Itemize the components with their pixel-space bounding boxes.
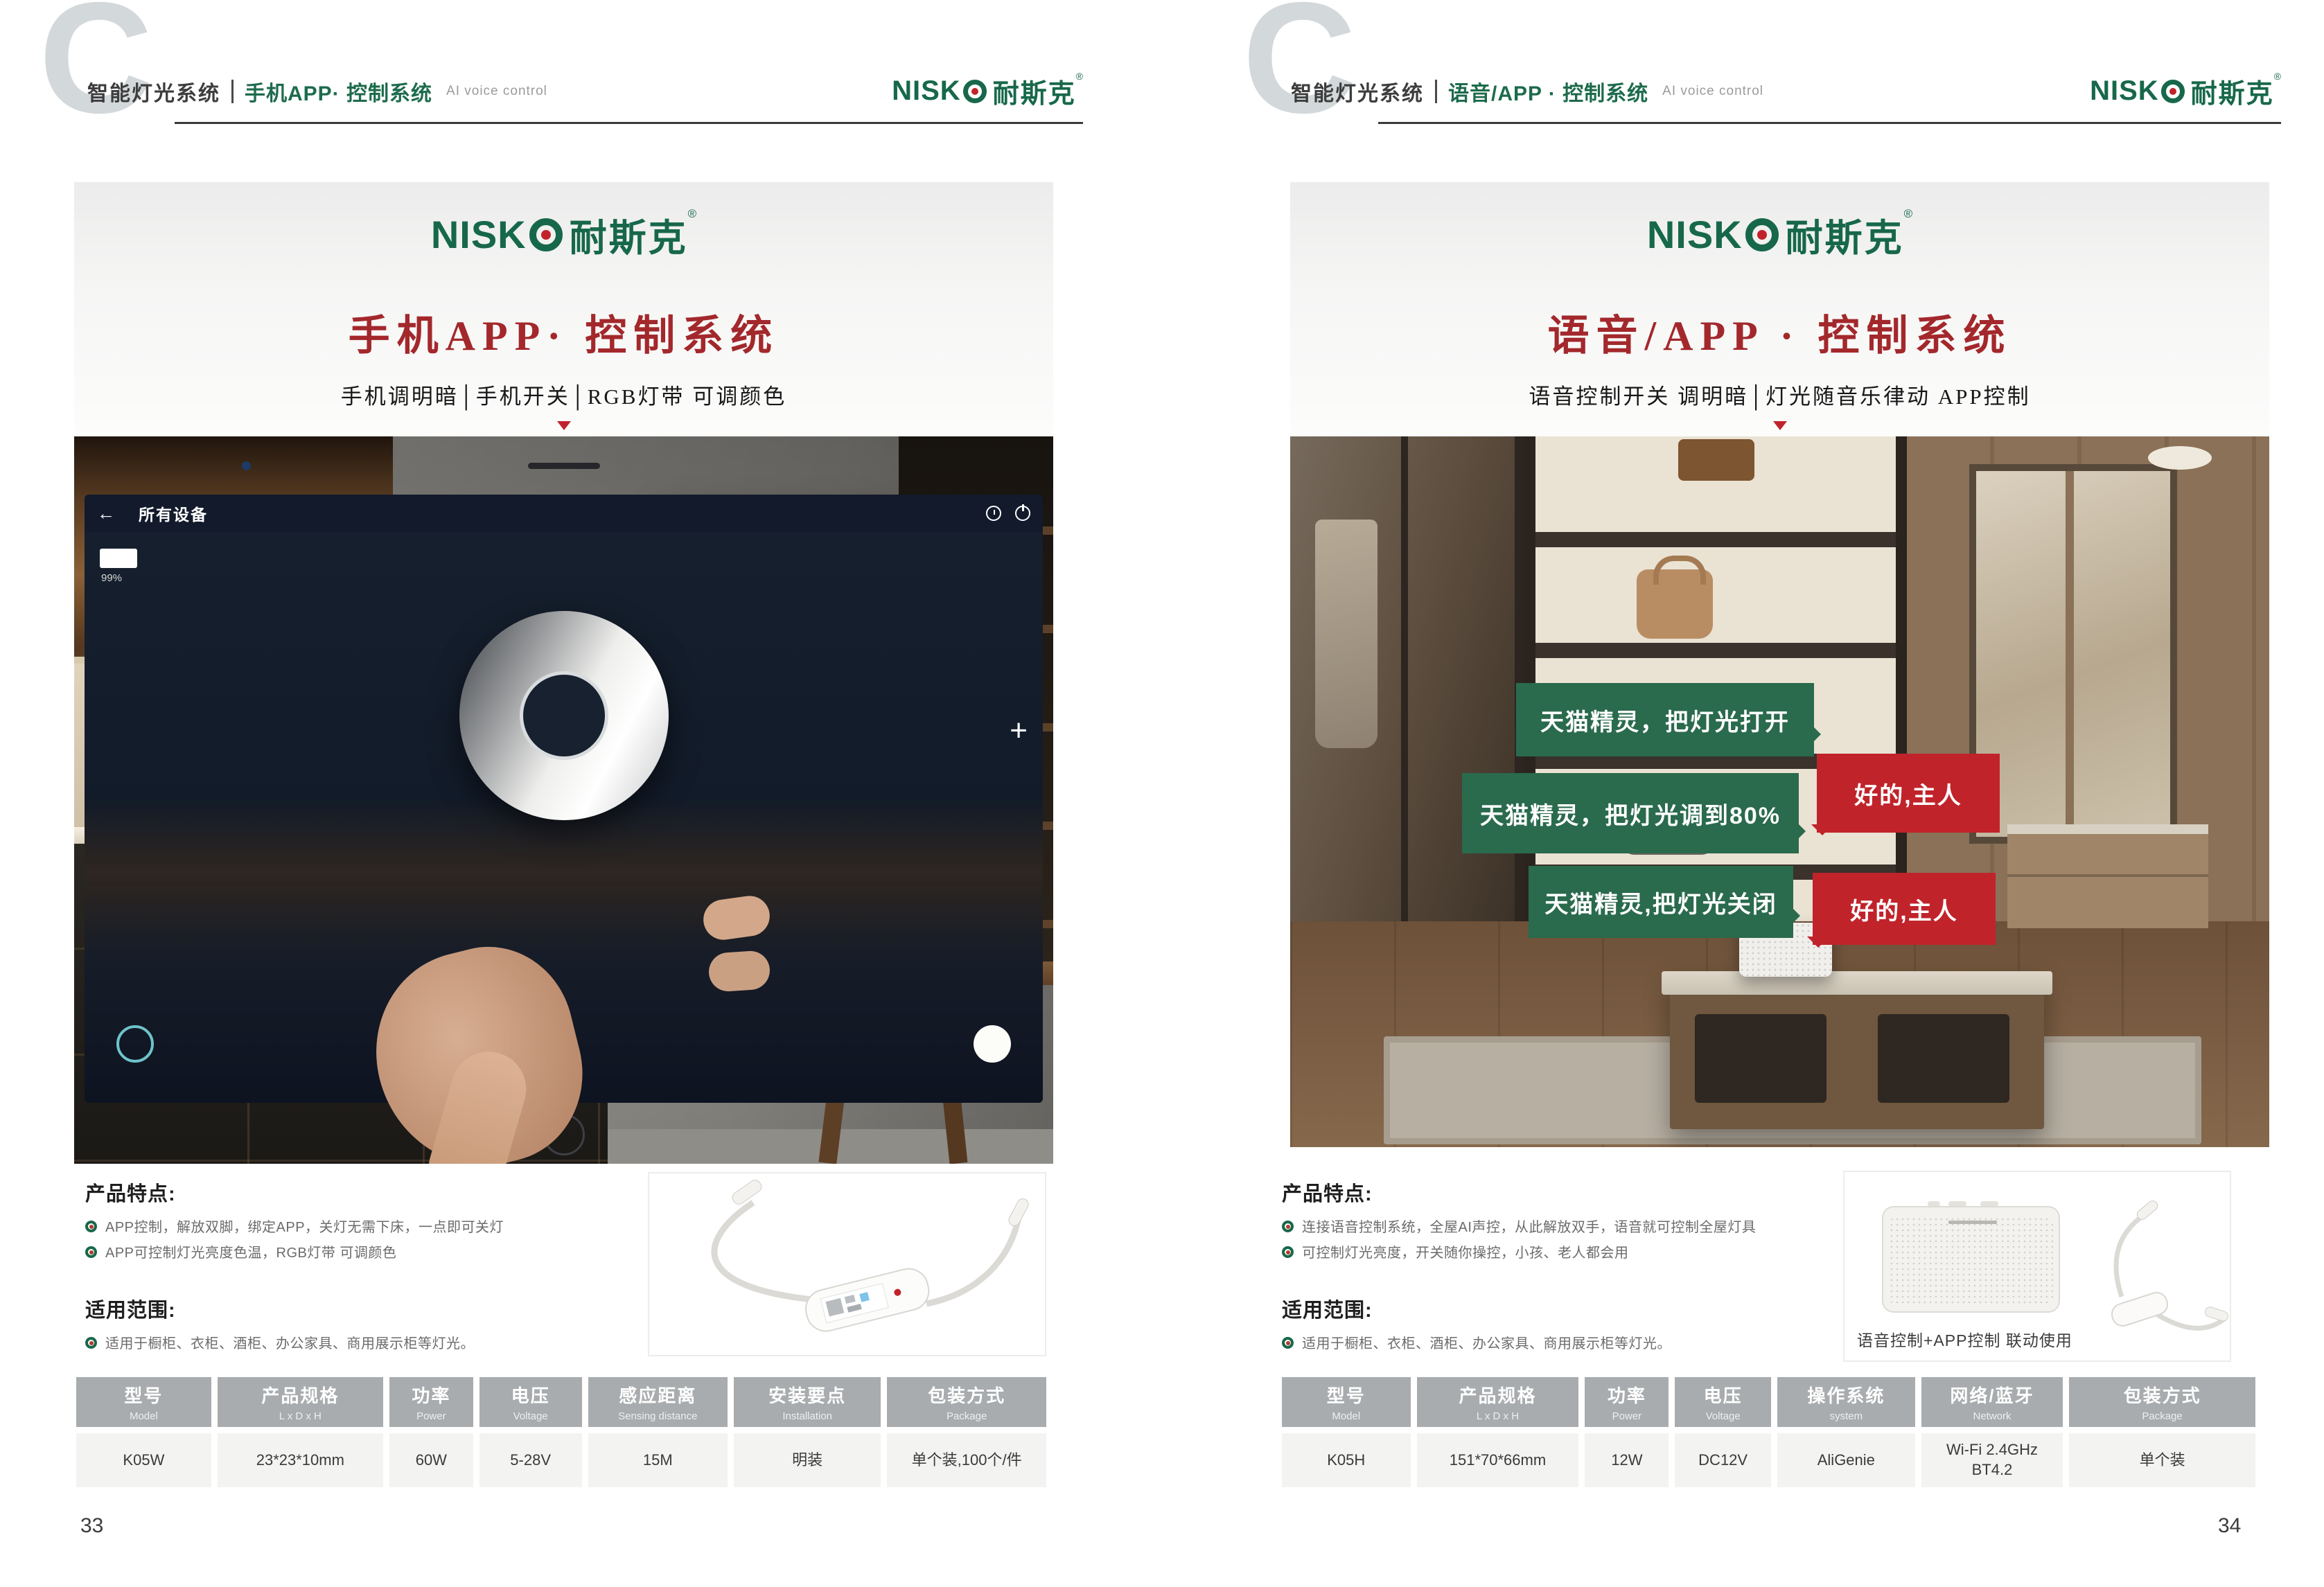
registered-mark: ® <box>1904 207 1913 221</box>
page-number: 33 <box>80 1514 103 1538</box>
voice-reply-bubble: 好的,主人 <box>1813 873 1996 945</box>
scope-title: 适用范围: <box>1282 1294 1836 1323</box>
voice-command-bubble: 天猫精灵,把灯光关闭 <box>1529 866 1793 938</box>
smartphone: ← 所有设备 99% + <box>74 436 320 897</box>
app-top-icons <box>986 506 1030 521</box>
table-cubby <box>1695 1014 1826 1103</box>
down-triangle-icon <box>557 421 571 430</box>
back-arrow-icon: ← <box>97 503 115 524</box>
product-card: NISK 耐斯克 ® 手机APP· 控制系统 手机调明暗│手机开关│RGB灯带 … <box>74 182 1053 1164</box>
bullet-target-icon <box>85 1221 97 1232</box>
bullet-target-icon <box>1282 1337 1294 1349</box>
logo-latin-text: NISK <box>1647 212 1743 257</box>
header-topic-title: 语音/APP · 控制系统 <box>1448 76 1648 107</box>
bullet-target-icon <box>85 1337 97 1349</box>
features-title: 产品特点: <box>85 1178 626 1207</box>
header-divider <box>1435 80 1437 103</box>
feature-item: APP可控制灯光亮度色温，RGB灯带 可调颜色 <box>85 1243 626 1264</box>
scope-text: 适用于橱柜、衣柜、酒柜、办公家具、商用展示柜等灯光。 <box>105 1334 475 1354</box>
toggle-off-circle <box>116 1025 154 1063</box>
spec-header-cell: 操作系统system <box>1777 1377 1915 1427</box>
spec-value-cell: AliGenie <box>1777 1433 1915 1487</box>
header-section-title: 智能灯光系统 <box>87 76 220 107</box>
logo-cjk-text: 耐斯克 <box>1786 207 1904 262</box>
logo-latin-text: NISK <box>892 76 961 107</box>
features-block: 产品特点: APP控制，解放双脚，绑定APP，关灯无需下床，一点即可关灯 APP… <box>85 1178 626 1360</box>
spec-value-cell: 23*23*10mm <box>218 1433 383 1487</box>
registered-mark: ® <box>2274 71 2281 82</box>
controller-drawing <box>649 1173 1045 1355</box>
card-header: NISK 耐斯克 ® 手机APP· 控制系统 手机调明暗│手机开关│RGB灯带 … <box>74 182 1053 436</box>
hero-subtitle: 手机调明暗│手机开关│RGB灯带 可调颜色 <box>74 379 1053 410</box>
power-icon <box>1015 506 1030 521</box>
briefcase <box>1678 439 1754 481</box>
phone-speaker-slit <box>528 463 600 469</box>
logo-o-icon <box>529 218 563 251</box>
header-tagline: AI voice control <box>1662 84 1763 99</box>
page-number: 34 <box>2218 1514 2241 1538</box>
header-rule <box>175 122 1083 124</box>
hero-subtitle: 语音控制开关 调明暗│灯光随音乐律动 APP控制 <box>1290 379 2269 410</box>
logo-latin-text: NISK <box>431 212 527 257</box>
bullet-target-icon <box>1282 1246 1294 1258</box>
spec-value-cell: 12W <box>1585 1433 1669 1487</box>
brand-logo: NISK 耐斯克 ® <box>2090 72 2281 110</box>
spec-table: 型号Model 产品规格L x D x H 功率Power 电压Voltage … <box>1282 1377 2255 1487</box>
spec-header-cell: 功率Power <box>1585 1377 1669 1427</box>
closet-photo: 天猫精灵，把灯光打开 天猫精灵，把灯光调到80% 天猫精灵,把灯光关闭 好的,主… <box>1290 436 2269 1147</box>
table-value-row: K05W 23*23*10mm 60W 5-28V 15M 明装 单个装,100… <box>76 1433 1046 1487</box>
background-letter: C <box>1242 0 1357 137</box>
spec-value-cell: 单个装,100个/件 <box>887 1433 1046 1487</box>
spec-header-cell: 电压Voltage <box>479 1377 582 1427</box>
product-caption: 语音控制+APP控制 联动使用 <box>1857 1327 2072 1351</box>
header-section-title: 智能灯光系统 <box>1291 76 1424 107</box>
alarm-icon <box>986 506 1001 521</box>
spec-header-cell: 产品规格L x D x H <box>218 1377 383 1427</box>
scope-text: 适用于橱柜、衣柜、酒柜、办公家具、商用展示柜等灯光。 <box>1302 1334 1671 1354</box>
logo-o-icon <box>963 80 987 103</box>
header-rule <box>1378 122 2281 124</box>
card-header: NISK 耐斯克 ® 语音/APP · 控制系统 语音控制开关 调明暗│灯光随音… <box>1290 182 2269 436</box>
features-title: 产品特点: <box>1282 1178 1836 1207</box>
voice-command-bubble: 天猫精灵，把灯光打开 <box>1516 683 1814 756</box>
bullet-target-icon <box>85 1246 97 1258</box>
brand-logo-large: NISK 耐斯克 ® <box>74 207 1053 262</box>
scope-title: 适用范围: <box>85 1294 626 1323</box>
spec-header-cell: 包装方式Package <box>887 1377 1046 1427</box>
spec-header-cell: 产品规格L x D x H <box>1417 1377 1579 1427</box>
feature-text: 连接语音控制系统，全屋AI声控，从此解放双手，语音就可控制全屋灯具 <box>1302 1218 1756 1238</box>
hero-title: 语音/APP · 控制系统 <box>1290 302 2269 362</box>
spec-header-cell: 包装方式Package <box>2069 1377 2255 1427</box>
logo-o-icon <box>1745 218 1779 251</box>
page-header: 智能灯光系统 手机APP· 控制系统 AI voice control <box>87 76 547 107</box>
handbag <box>1637 569 1713 639</box>
spec-header-cell: 感应距离Sensing distance <box>588 1377 728 1427</box>
app-controller-image <box>648 1172 1046 1356</box>
hanging-clothes <box>1315 520 1377 748</box>
bullet-target-icon <box>1282 1221 1294 1232</box>
logo-cjk-text: 耐斯克 <box>570 207 688 262</box>
mirror-panel <box>1969 464 2177 844</box>
feature-item: 可控制灯光亮度，开关随你操控，小孩、老人都会用 <box>1282 1243 1836 1264</box>
toggle-on-circle <box>974 1025 1011 1063</box>
feature-item: APP控制，解放双脚，绑定APP，关灯无需下床，一点即可关灯 <box>85 1218 626 1238</box>
spec-header-cell: 安装要点Installation <box>734 1377 881 1427</box>
registered-mark: ® <box>1076 71 1083 82</box>
smart-speaker-image: 语音控制+APP控制 联动使用 <box>1843 1171 2231 1362</box>
spec-value-cell: 15M <box>588 1433 728 1487</box>
kitchen-photo: ← 所有设备 99% + <box>74 436 1053 1164</box>
spec-value-cell: K05H <box>1282 1433 1411 1487</box>
registered-mark: ® <box>688 207 697 221</box>
spec-value-cell: 单个装 <box>2069 1433 2255 1487</box>
feature-item: 连接语音控制系统，全屋AI声控，从此解放双手，语音就可控制全屋灯具 <box>1282 1218 1836 1238</box>
spec-header-cell: 电压Voltage <box>1675 1377 1770 1427</box>
page-header: 智能灯光系统 语音/APP · 控制系统 AI voice control <box>1291 76 1763 107</box>
features-block: 产品特点: 连接语音控制系统，全屋AI声控，从此解放双手，语音就可控制全屋灯具 … <box>1282 1178 1836 1360</box>
spec-value-cell: DC12V <box>1675 1433 1770 1487</box>
voice-command-bubble: 天猫精灵，把灯光调到80% <box>1462 773 1799 853</box>
dresser <box>2007 824 2208 928</box>
brand-logo: NISK 耐斯克 ® <box>892 72 1083 110</box>
table-header-row: 型号Model 产品规格L x D x H 功率Power 电压Voltage … <box>76 1377 1046 1427</box>
spec-header-cell: 网络/蓝牙Network <box>1921 1377 2063 1427</box>
device-tile <box>100 549 137 568</box>
hat <box>2148 446 2212 470</box>
feature-text: 可控制灯光亮度，开关随你操控，小孩、老人都会用 <box>1302 1243 1629 1264</box>
brand-logo-large: NISK 耐斯克 ® <box>1290 207 2269 262</box>
product-card: NISK 耐斯克 ® 语音/APP · 控制系统 语音控制开关 调明暗│灯光随音… <box>1290 182 2269 1147</box>
spec-table: 型号Model 产品规格L x D x H 功率Power 电压Voltage … <box>76 1377 1046 1487</box>
app-screen-title: 所有设备 <box>139 502 208 525</box>
page-left: C 智能灯光系统 手机APP· 控制系统 AI voice control NI… <box>0 0 1162 1587</box>
phone-camera-dot <box>242 461 251 470</box>
spec-value-cell: Wi-Fi 2.4GHz BT4.2 <box>1921 1433 2063 1487</box>
spec-value-cell: 明装 <box>734 1433 881 1487</box>
hero-title: 手机APP· 控制系统 <box>74 302 1053 362</box>
coffee-table <box>1670 971 2044 1129</box>
background-letter: C <box>39 0 153 137</box>
table-value-row: K05H 151*70*66mm 12W DC12V AliGenie Wi-F… <box>1282 1433 2255 1487</box>
app-top-bar: ← 所有设备 <box>85 495 1043 532</box>
battery-percent-label: 99% <box>101 572 122 584</box>
table-cubby <box>1878 1014 2009 1103</box>
logo-cjk-text: 耐斯克 <box>2191 72 2274 110</box>
header-topic-title: 手机APP· 控制系统 <box>245 76 432 107</box>
header-divider <box>231 80 234 103</box>
logo-cjk-text: 耐斯克 <box>993 72 1076 110</box>
spec-value-cell: 151*70*66mm <box>1417 1433 1579 1487</box>
dial-core <box>520 671 608 760</box>
down-triangle-icon <box>1773 421 1787 430</box>
voice-reply-bubble: 好的,主人 <box>1817 754 2000 833</box>
feature-text: APP控制，解放双脚，绑定APP，关灯无需下床，一点即可关灯 <box>105 1218 504 1238</box>
catalog-spread: C 智能灯光系统 手机APP· 控制系统 AI voice control NI… <box>0 0 2324 1587</box>
feature-text: APP可控制灯光亮度色温，RGB灯带 可调颜色 <box>105 1243 396 1264</box>
finger <box>707 950 771 993</box>
spec-value-cell: 60W <box>389 1433 473 1487</box>
scope-item: 适用于橱柜、衣柜、酒柜、办公家具、商用展示柜等灯光。 <box>85 1334 626 1354</box>
spec-value-cell: K05W <box>76 1433 211 1487</box>
spec-header-cell: 功率Power <box>389 1377 473 1427</box>
page-right: C 智能灯光系统 语音/APP · 控制系统 AI voice control … <box>1162 0 2324 1587</box>
spec-value-cell: 5-28V <box>479 1433 582 1487</box>
plus-icon: + <box>1010 713 1028 748</box>
scope-item: 适用于橱柜、衣柜、酒柜、办公家具、商用展示柜等灯光。 <box>1282 1334 1836 1354</box>
logo-latin-text: NISK <box>2090 76 2159 107</box>
spec-header-cell: 型号Model <box>76 1377 211 1427</box>
brightness-dial <box>459 611 669 820</box>
logo-o-icon <box>2161 80 2185 103</box>
header-tagline: AI voice control <box>446 84 547 99</box>
table-header-row: 型号Model 产品规格L x D x H 功率Power 电压Voltage … <box>1282 1377 2255 1427</box>
spec-header-cell: 型号Model <box>1282 1377 1411 1427</box>
